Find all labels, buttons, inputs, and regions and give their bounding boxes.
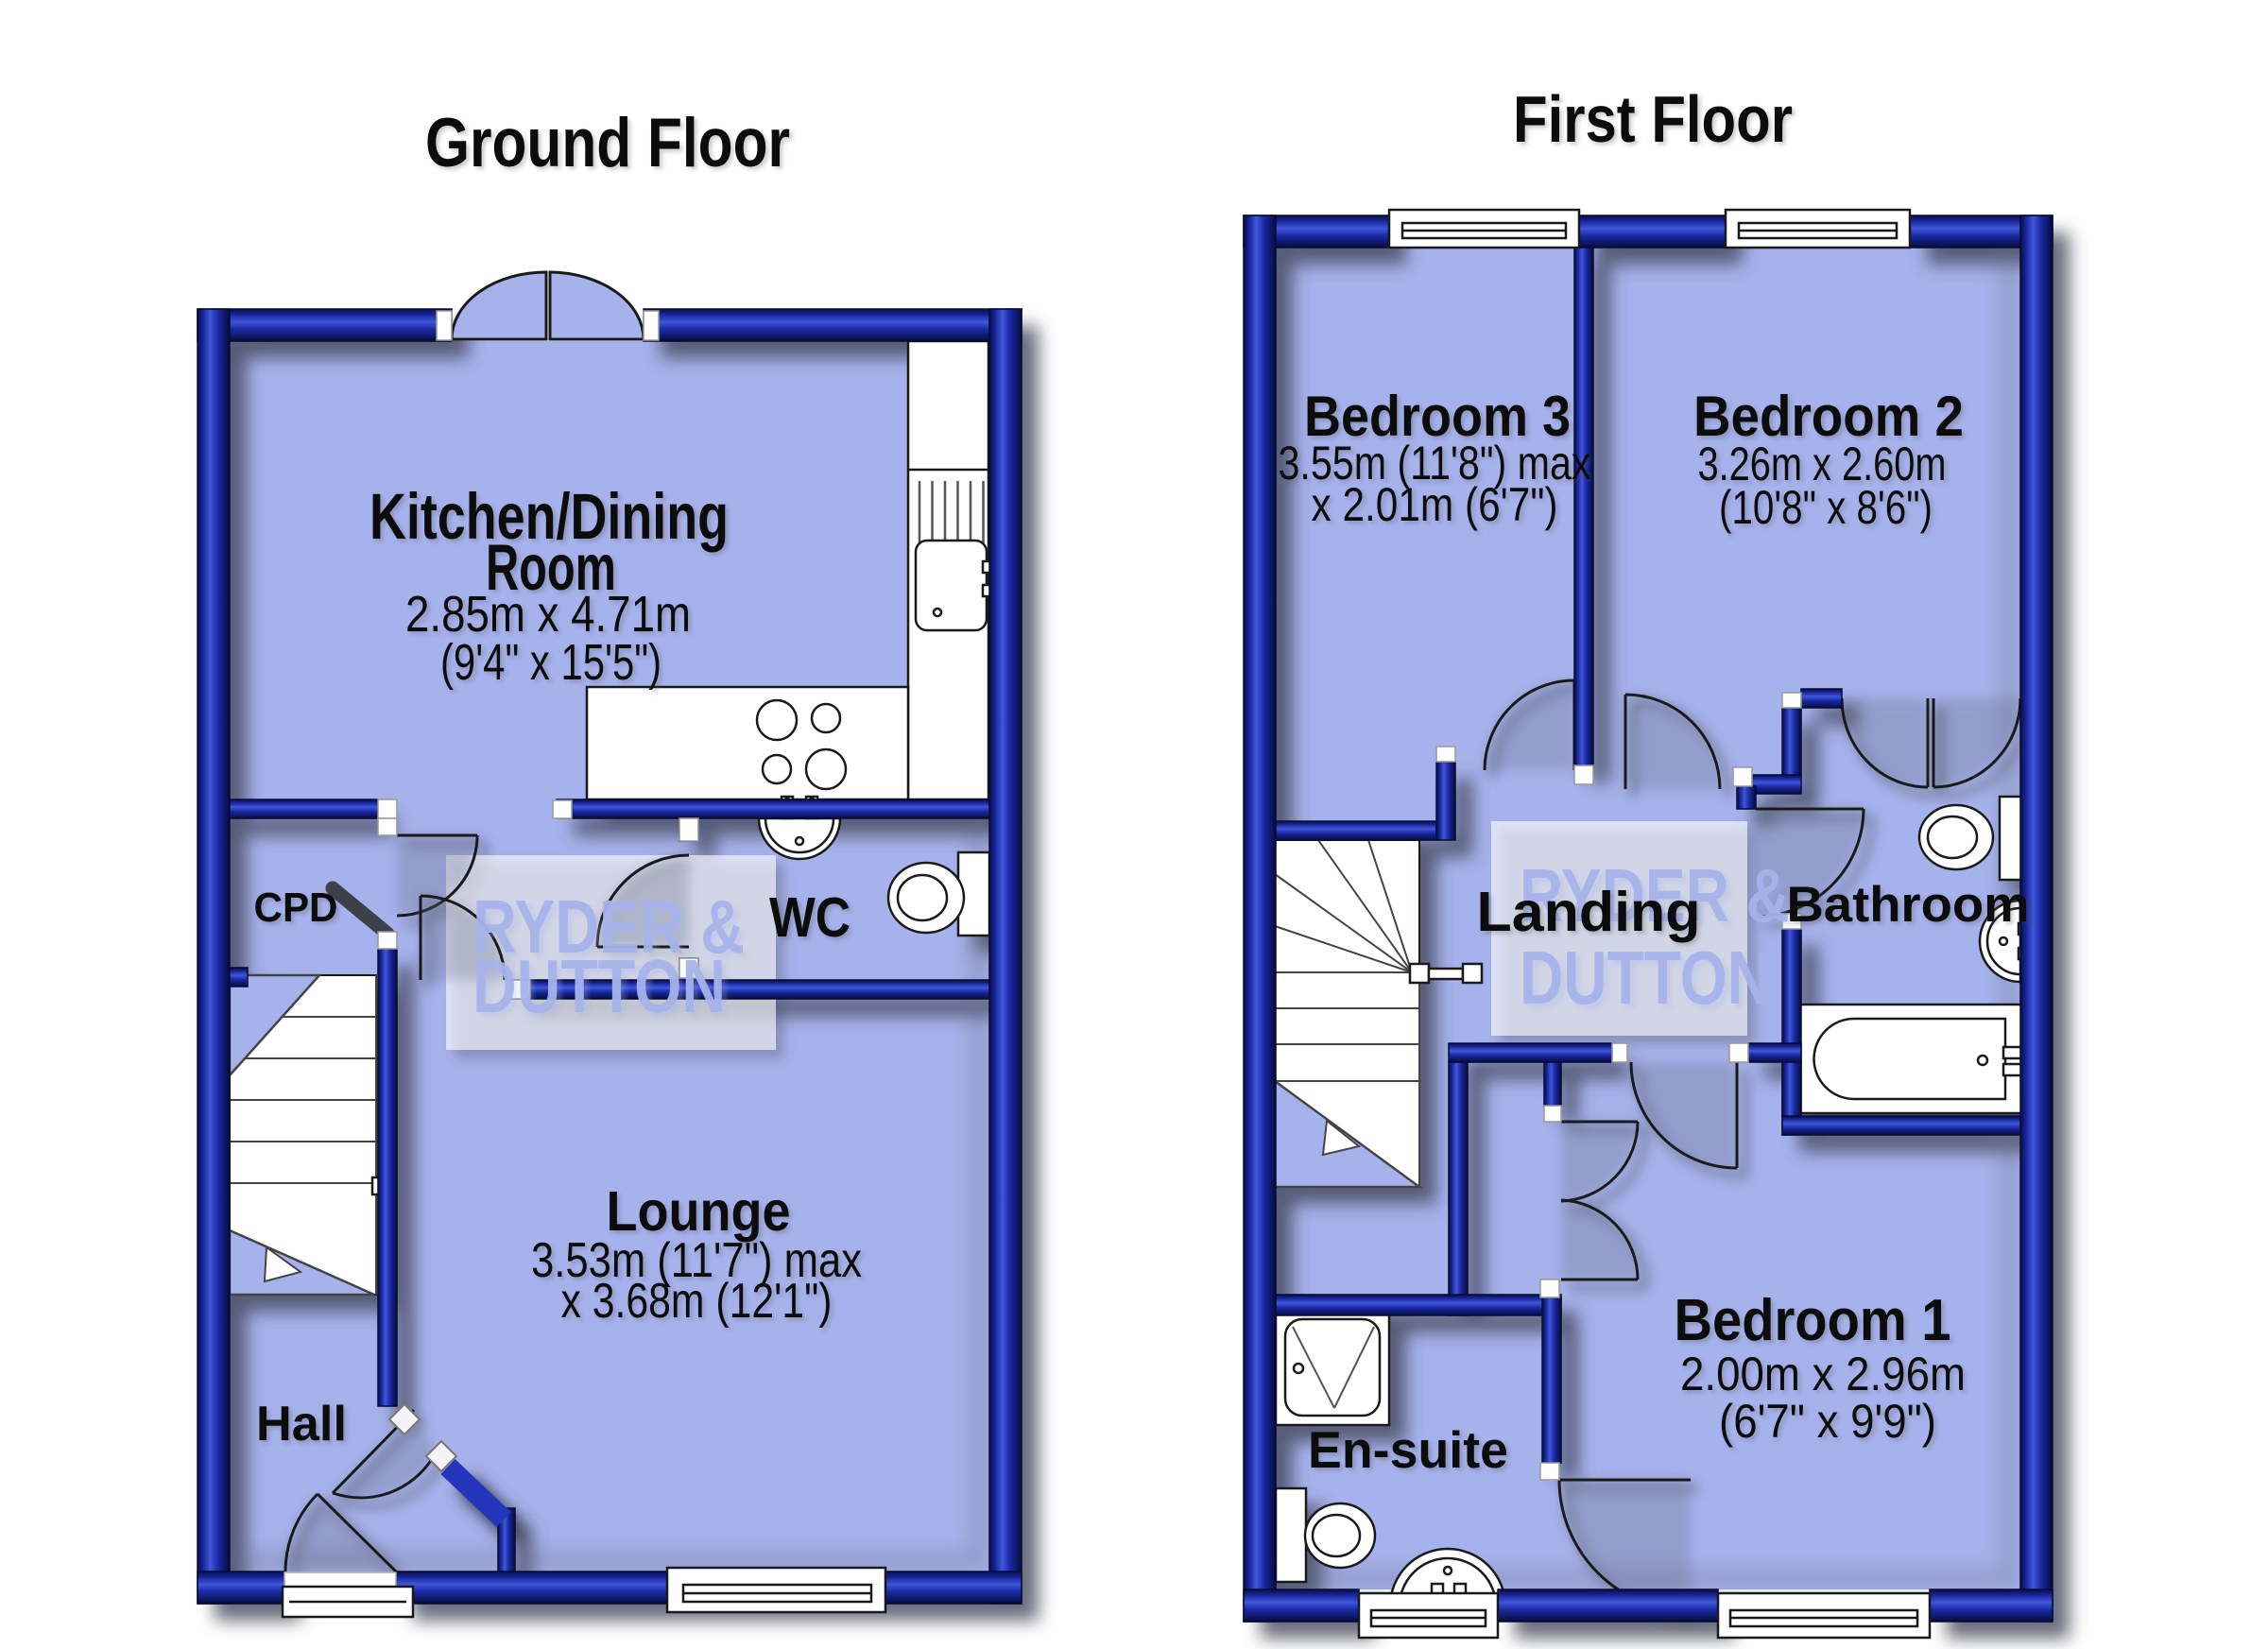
svg-text:x 3.68m (12'1"): x 3.68m (12'1") [561, 1274, 833, 1329]
svg-text:Ground Floor: Ground Floor [425, 105, 790, 181]
svg-text:DUTTON: DUTTON [1520, 936, 1771, 1020]
svg-text:DUTTON: DUTTON [472, 944, 726, 1028]
svg-text:Landing: Landing [1477, 881, 1701, 943]
svg-text:First Floor: First Floor [1513, 82, 1793, 156]
svg-text:(6'7" x 9'9"): (6'7" x 9'9") [1719, 1395, 1936, 1448]
svg-text:WC: WC [769, 886, 850, 949]
svg-text:Bedroom 1: Bedroom 1 [1675, 1288, 1951, 1353]
svg-text:(10'8" x 8'6"): (10'8" x 8'6") [1719, 481, 1933, 534]
svg-text:CPD: CPD [254, 885, 338, 931]
svg-text:Hall: Hall [256, 1397, 347, 1451]
svg-text:En-suite: En-suite [1308, 1420, 1508, 1479]
svg-text:Bathroom: Bathroom [1787, 877, 2030, 933]
svg-text:x 2.01m (6'7"): x 2.01m (6'7") [1312, 478, 1558, 531]
svg-text:2.00m x 2.96m: 2.00m x 2.96m [1680, 1348, 1966, 1400]
svg-text:(9'4" x 15'5"): (9'4" x 15'5") [440, 634, 661, 691]
